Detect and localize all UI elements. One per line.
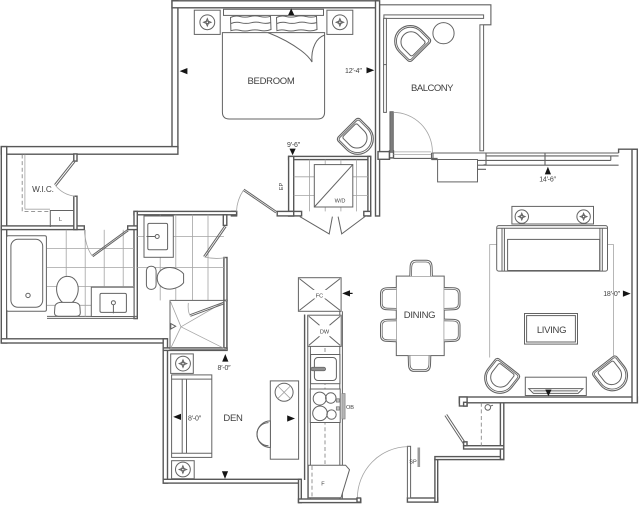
svg-text:FC: FC bbox=[316, 294, 323, 300]
svg-text:18′-0″: 18′-0″ bbox=[603, 291, 620, 298]
svg-text:W/D: W/D bbox=[335, 199, 346, 205]
svg-text:BEDROOM: BEDROOM bbox=[248, 76, 295, 87]
svg-text:SP: SP bbox=[409, 460, 417, 466]
svg-text:14′-6″: 14′-6″ bbox=[539, 177, 556, 184]
svg-text:8′-0″: 8′-0″ bbox=[188, 416, 202, 423]
svg-text:DEN: DEN bbox=[223, 413, 243, 424]
svg-text:BALCONY: BALCONY bbox=[411, 83, 454, 94]
svg-text:LIVING: LIVING bbox=[537, 325, 566, 336]
svg-text:W.I.C.: W.I.C. bbox=[32, 185, 54, 194]
svg-text:DINING: DINING bbox=[404, 310, 435, 321]
svg-text:8′-0″: 8′-0″ bbox=[218, 365, 232, 372]
svg-text:OB: OB bbox=[346, 405, 354, 411]
svg-text:F: F bbox=[321, 482, 325, 488]
svg-text:12′-4″: 12′-4″ bbox=[345, 68, 362, 75]
svg-text:DW: DW bbox=[320, 330, 330, 336]
svg-text:L: L bbox=[59, 217, 62, 223]
svg-text:EP: EP bbox=[279, 183, 285, 191]
svg-text:9′-6″: 9′-6″ bbox=[287, 142, 301, 149]
